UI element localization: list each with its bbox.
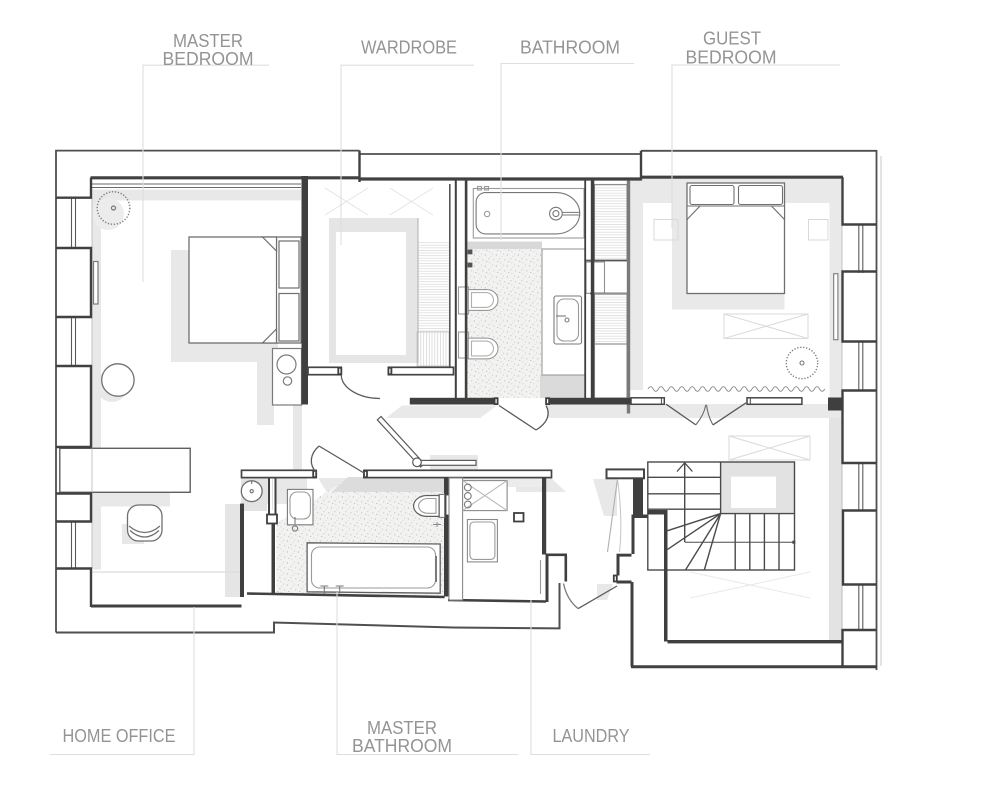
svg-text:BEDROOM: BEDROOM [686, 47, 777, 68]
svg-text:BEDROOM: BEDROOM [163, 48, 254, 69]
svg-text:WARDROBE: WARDROBE [361, 37, 457, 58]
svg-text:HOME OFFICE: HOME OFFICE [63, 725, 176, 746]
svg-text:BATHROOM: BATHROOM [352, 735, 452, 756]
svg-text:GUEST: GUEST [703, 28, 761, 49]
svg-text:BATHROOM: BATHROOM [520, 37, 620, 58]
svg-text:LAUNDRY: LAUNDRY [553, 725, 630, 746]
